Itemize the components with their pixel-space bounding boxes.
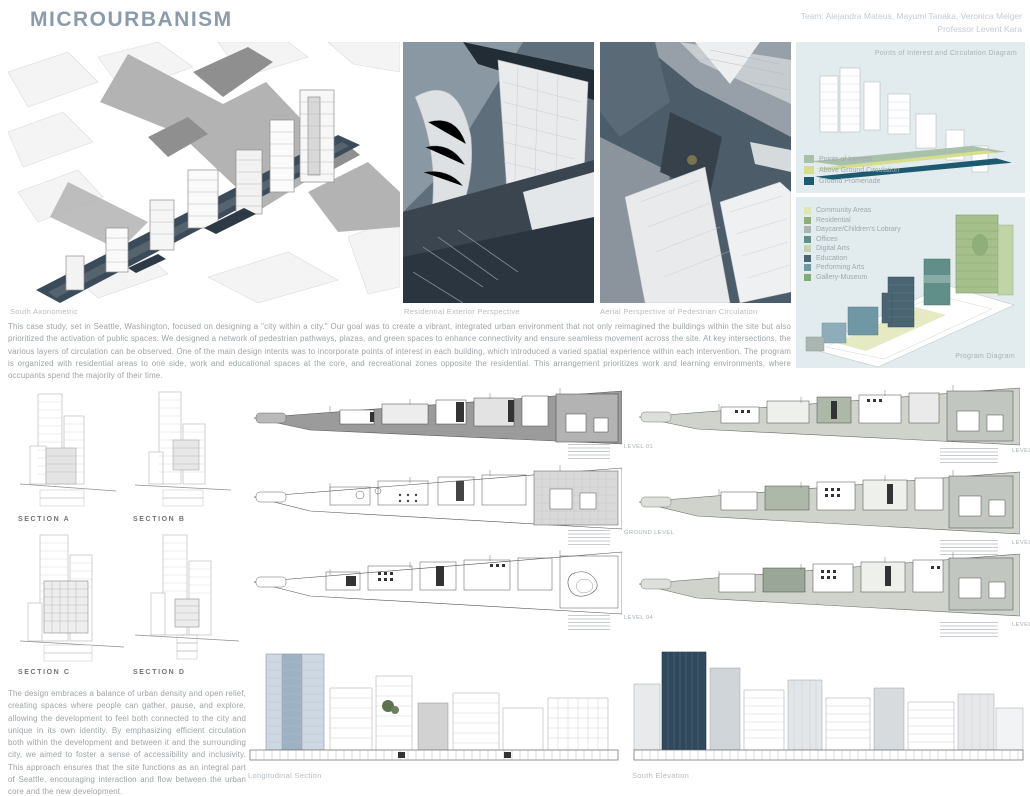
- legend-swatch: [804, 207, 811, 214]
- plan-ground-level: [250, 465, 622, 533]
- legend-item: Above Ground Circulation: [804, 166, 899, 174]
- legend-item: Education: [804, 255, 901, 262]
- section-c-label: SECTION C: [18, 669, 71, 676]
- legend-swatch: [804, 177, 814, 185]
- legend-label: Above Ground Circulation: [819, 167, 899, 174]
- design-paragraph: The design embraces a balance of urban d…: [8, 688, 246, 796]
- team-credits: Team: Alejandra Mateus, Mayumi Tanaka, V…: [801, 10, 1022, 36]
- legend-label: Performing Arts: [816, 264, 864, 271]
- longitudinal-section-caption: Longitudinal Section: [248, 771, 322, 780]
- longitudinal-section-drawing: [248, 648, 620, 766]
- plan-annotation: LEVEL 01: [568, 444, 653, 460]
- legend-item: Gallery-Museum: [804, 274, 901, 281]
- credits-professor-line: Professor Levent Kara: [801, 23, 1022, 36]
- south-elevation-drawing: [632, 650, 1025, 766]
- section-a-label: SECTION A: [18, 516, 70, 523]
- plan-annotation: LEVEL 02: [940, 448, 1030, 464]
- plan-annotation: GROUND LEVEL: [568, 530, 674, 546]
- axonometric-caption: South Axonometric: [10, 307, 78, 316]
- section-a-drawing: [18, 390, 118, 512]
- legend-label: Points of Interest: [819, 156, 872, 163]
- circulation-diagram-panel: Points of Interest and Circulation Diagr…: [796, 42, 1025, 193]
- legend-item: Daycare/Children's Lobrary: [804, 226, 901, 233]
- legend-label: Daycare/Children's Lobrary: [816, 226, 901, 233]
- plan-notes: [568, 530, 610, 546]
- circulation-legend: Points of Interest Above Ground Circulat…: [804, 155, 899, 185]
- legend-item: Points of Interest: [804, 155, 899, 163]
- plan-label: GROUND LEVEL: [624, 530, 674, 536]
- plan-annotation: LEVEL 05: [940, 622, 1030, 638]
- circulation-diagram-caption: Points of Interest and Circulation Diagr…: [875, 50, 1017, 57]
- axonometric-rendering: [8, 42, 400, 303]
- presentation-board: MICROURBANISM Team: Alejandra Mateus, Ma…: [0, 0, 1030, 796]
- program-diagram-panel: Community Areas Residential Daycare/Chil…: [796, 197, 1025, 368]
- program-legend: Community Areas Residential Daycare/Chil…: [804, 207, 901, 281]
- residential-perspective-rendering: [403, 42, 594, 303]
- legend-item: Offices: [804, 236, 901, 243]
- legend-label: Ground Promenade: [819, 178, 880, 185]
- plan-label: LEVEL 04: [624, 615, 653, 621]
- plan-level-01: [250, 388, 622, 448]
- legend-swatch: [804, 264, 811, 271]
- intro-paragraph: This case study, set in Seattle, Washing…: [8, 321, 791, 382]
- program-diagram-caption: Program Diagram: [955, 353, 1015, 360]
- plan-notes: [940, 448, 998, 464]
- plan-label: LEVEL 03: [1012, 540, 1030, 546]
- plan-annotation: LEVEL 04: [568, 615, 653, 631]
- legend-swatch: [804, 236, 811, 243]
- section-d-label: SECTION D: [133, 669, 186, 676]
- plan-notes: [568, 615, 610, 631]
- legend-swatch: [804, 226, 811, 233]
- section-d-drawing: [133, 533, 241, 663]
- aerial-perspective-caption: Aerial Perspective of Pedestrian Circula…: [600, 307, 757, 316]
- legend-item: Performing Arts: [804, 264, 901, 271]
- aerial-perspective-rendering: [600, 42, 791, 303]
- plan-level-04: [250, 548, 622, 618]
- legend-label: Gallery-Museum: [816, 274, 867, 281]
- legend-item: Residential: [804, 217, 901, 224]
- legend-label: Community Areas: [816, 207, 871, 214]
- legend-item: Community Areas: [804, 207, 901, 214]
- legend-swatch: [804, 255, 811, 262]
- legend-label: Residential: [816, 217, 851, 224]
- residential-perspective-caption: Residential Exterior Perspective: [404, 307, 520, 316]
- plan-level-03: [635, 468, 1020, 538]
- plan-level-05: [635, 550, 1020, 620]
- plan-level-02: [635, 385, 1020, 449]
- section-c-drawing: [18, 533, 126, 665]
- legend-label: Digital Arts: [816, 245, 849, 252]
- legend-swatch: [804, 166, 814, 174]
- legend-item: Digital Arts: [804, 245, 901, 252]
- legend-swatch: [804, 155, 814, 163]
- plan-notes: [940, 622, 998, 638]
- south-elevation-caption: South Elevation: [632, 771, 689, 780]
- section-b-label: SECTION B: [133, 516, 186, 523]
- plan-label: LEVEL 05: [1012, 622, 1030, 628]
- legend-label: Offices: [816, 236, 838, 243]
- legend-item: Ground Promenade: [804, 177, 899, 185]
- plan-notes: [568, 444, 610, 460]
- legend-swatch: [804, 217, 811, 224]
- section-b-drawing: [133, 390, 233, 512]
- legend-swatch: [804, 274, 811, 281]
- credits-team-line: Team: Alejandra Mateus, Mayumi Tanaka, V…: [801, 10, 1022, 23]
- page-title: MICROURBANISM: [30, 8, 233, 32]
- plan-label: LEVEL 02: [1012, 448, 1030, 454]
- plan-label: LEVEL 01: [624, 444, 653, 450]
- legend-swatch: [804, 245, 811, 252]
- legend-label: Education: [816, 255, 847, 262]
